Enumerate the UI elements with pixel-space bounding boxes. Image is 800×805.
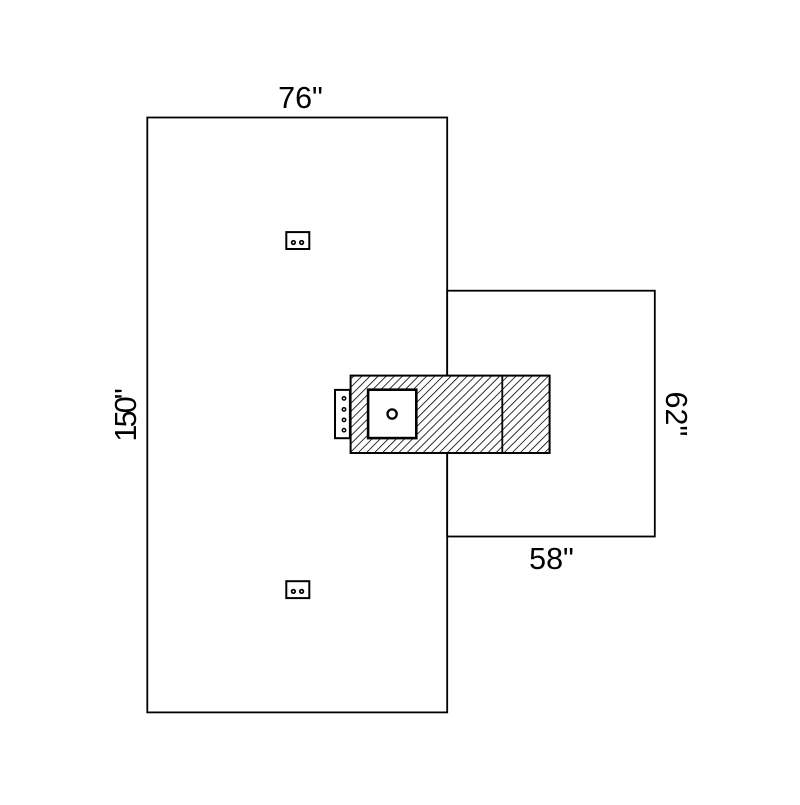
svg-text:58": 58" (529, 542, 574, 576)
svg-text:62": 62" (659, 392, 693, 437)
svg-text:150": 150" (109, 389, 143, 441)
svg-text:76": 76" (278, 81, 323, 115)
